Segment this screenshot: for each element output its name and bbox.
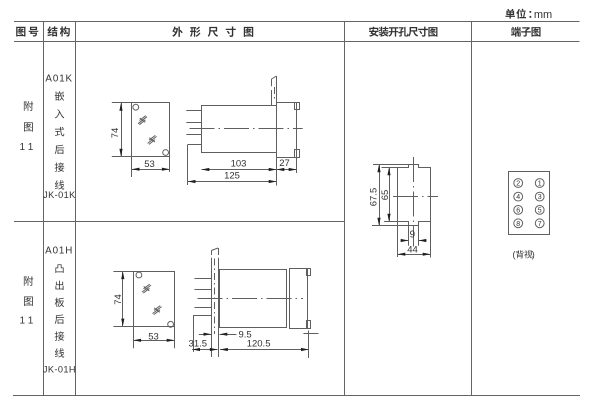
svg-text:JK-01K: JK-01K <box>43 190 76 200</box>
svg-text:A01K: A01K <box>45 73 73 84</box>
svg-text:31.5: 31.5 <box>189 339 208 350</box>
svg-text:74: 74 <box>113 294 124 305</box>
svg-text:53: 53 <box>144 159 155 170</box>
svg-text:1 1: 1 1 <box>19 315 33 326</box>
svg-text:(: ( <box>513 249 516 259</box>
svg-text:74: 74 <box>110 128 121 139</box>
svg-text:67.5: 67.5 <box>369 188 380 207</box>
svg-text:A01H: A01H <box>45 245 73 256</box>
svg-text:103: 103 <box>231 158 247 169</box>
svg-text:27: 27 <box>279 158 290 169</box>
svg-text:65: 65 <box>380 190 391 201</box>
svg-text:5: 5 <box>538 208 542 215</box>
svg-text:7: 7 <box>538 221 542 228</box>
svg-text:2: 2 <box>516 181 520 188</box>
svg-text:120.5: 120.5 <box>247 339 271 350</box>
svg-text:9: 9 <box>410 229 415 240</box>
svg-text:1: 1 <box>538 181 542 188</box>
svg-text:6: 6 <box>516 208 520 215</box>
svg-text:125: 125 <box>224 171 240 182</box>
svg-text:53: 53 <box>148 332 159 343</box>
svg-text:4: 4 <box>516 194 520 201</box>
svg-text:JK-01H: JK-01H <box>43 365 76 375</box>
svg-text:): ) <box>532 249 535 259</box>
svg-text:3: 3 <box>538 194 542 201</box>
svg-text:44: 44 <box>407 245 418 256</box>
svg-text:1 1: 1 1 <box>19 142 33 153</box>
svg-text:8: 8 <box>516 221 520 228</box>
svg-text:mm: mm <box>534 9 552 21</box>
